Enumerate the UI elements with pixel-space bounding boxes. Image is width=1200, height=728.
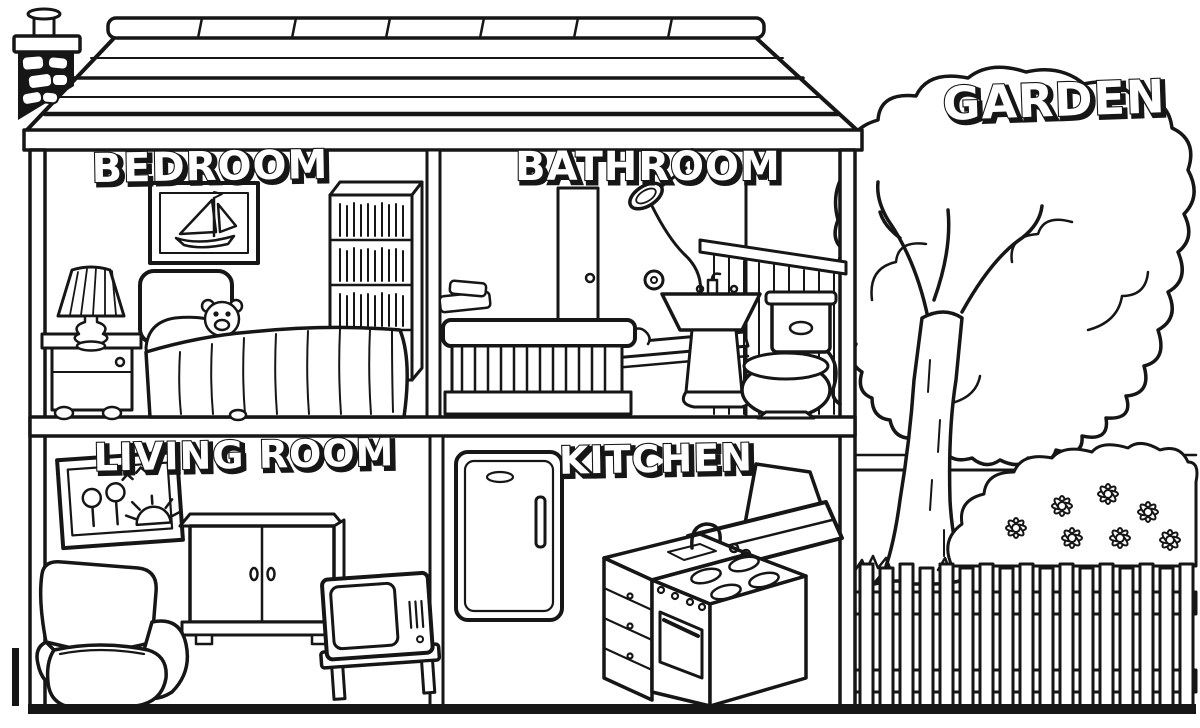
garden-label-text: GARDEN bbox=[942, 69, 1167, 131]
bathroom-label-text: BATHROOM bbox=[515, 144, 781, 190]
sink-pedestal bbox=[686, 330, 742, 392]
kitchen-label-text: KITCHEN bbox=[559, 435, 754, 482]
tub-base bbox=[445, 392, 631, 414]
sailboat-picture bbox=[150, 183, 258, 263]
toilet-tank-lid bbox=[766, 292, 836, 304]
toilet-seat bbox=[744, 353, 828, 379]
bathroom-label: BATHROOM BATHROOM bbox=[515, 144, 784, 193]
stove-oven bbox=[652, 554, 806, 706]
sink-bowl bbox=[662, 294, 760, 330]
bed-foot bbox=[230, 410, 246, 420]
toilet-tank bbox=[772, 298, 830, 352]
bathtub bbox=[439, 280, 635, 414]
chimney-cap bbox=[14, 36, 80, 52]
scan-artifact bbox=[12, 648, 19, 706]
cabinet bbox=[180, 514, 344, 644]
bedroom-label: BEDROOM BEDROOM bbox=[91, 142, 331, 195]
toilet-base bbox=[758, 412, 814, 418]
refrigerator bbox=[456, 452, 562, 620]
toilet bbox=[742, 292, 840, 418]
bedroom bbox=[42, 182, 422, 420]
kitchen bbox=[456, 452, 842, 706]
lamp-base bbox=[75, 316, 108, 343]
living-room-label-text: LIVING ROOM bbox=[93, 430, 395, 479]
roof-ridge-shingles bbox=[108, 18, 764, 38]
mid-floor-band bbox=[30, 417, 855, 436]
tub-panel bbox=[452, 346, 622, 392]
faucet bbox=[697, 274, 737, 294]
tv-screen bbox=[330, 583, 398, 649]
coloring-page: BEDROOM BEDROOM BATHROOM BATHROOM LIVING… bbox=[0, 0, 1200, 728]
bedroom-label-text: BEDROOM bbox=[91, 142, 328, 192]
sink-base bbox=[683, 392, 749, 407]
armchair-seat bbox=[48, 645, 167, 708]
fridge-handle bbox=[536, 497, 545, 547]
ground-line bbox=[28, 704, 1196, 714]
toilet-paper-roll bbox=[645, 271, 663, 289]
house-cross-section-drawing: BEDROOM BEDROOM BATHROOM BATHROOM LIVING… bbox=[0, 0, 1200, 728]
upper-divider-wall bbox=[427, 150, 440, 417]
garden-label: GARDEN GARDEN bbox=[942, 69, 1170, 134]
living-room-label: LIVING ROOM LIVING ROOM bbox=[93, 430, 398, 482]
armchair bbox=[37, 562, 187, 708]
towels bbox=[439, 280, 490, 312]
armchair-back bbox=[41, 562, 157, 651]
house bbox=[14, 9, 862, 708]
kitchen-label: KITCHEN KITCHEN bbox=[559, 435, 757, 485]
garden bbox=[835, 67, 1197, 710]
roof bbox=[26, 18, 858, 131]
living-room bbox=[37, 452, 442, 708]
tub-rim bbox=[443, 320, 635, 346]
television bbox=[316, 572, 442, 700]
fence-pickets bbox=[860, 564, 1193, 710]
picket-fence bbox=[852, 564, 1196, 710]
